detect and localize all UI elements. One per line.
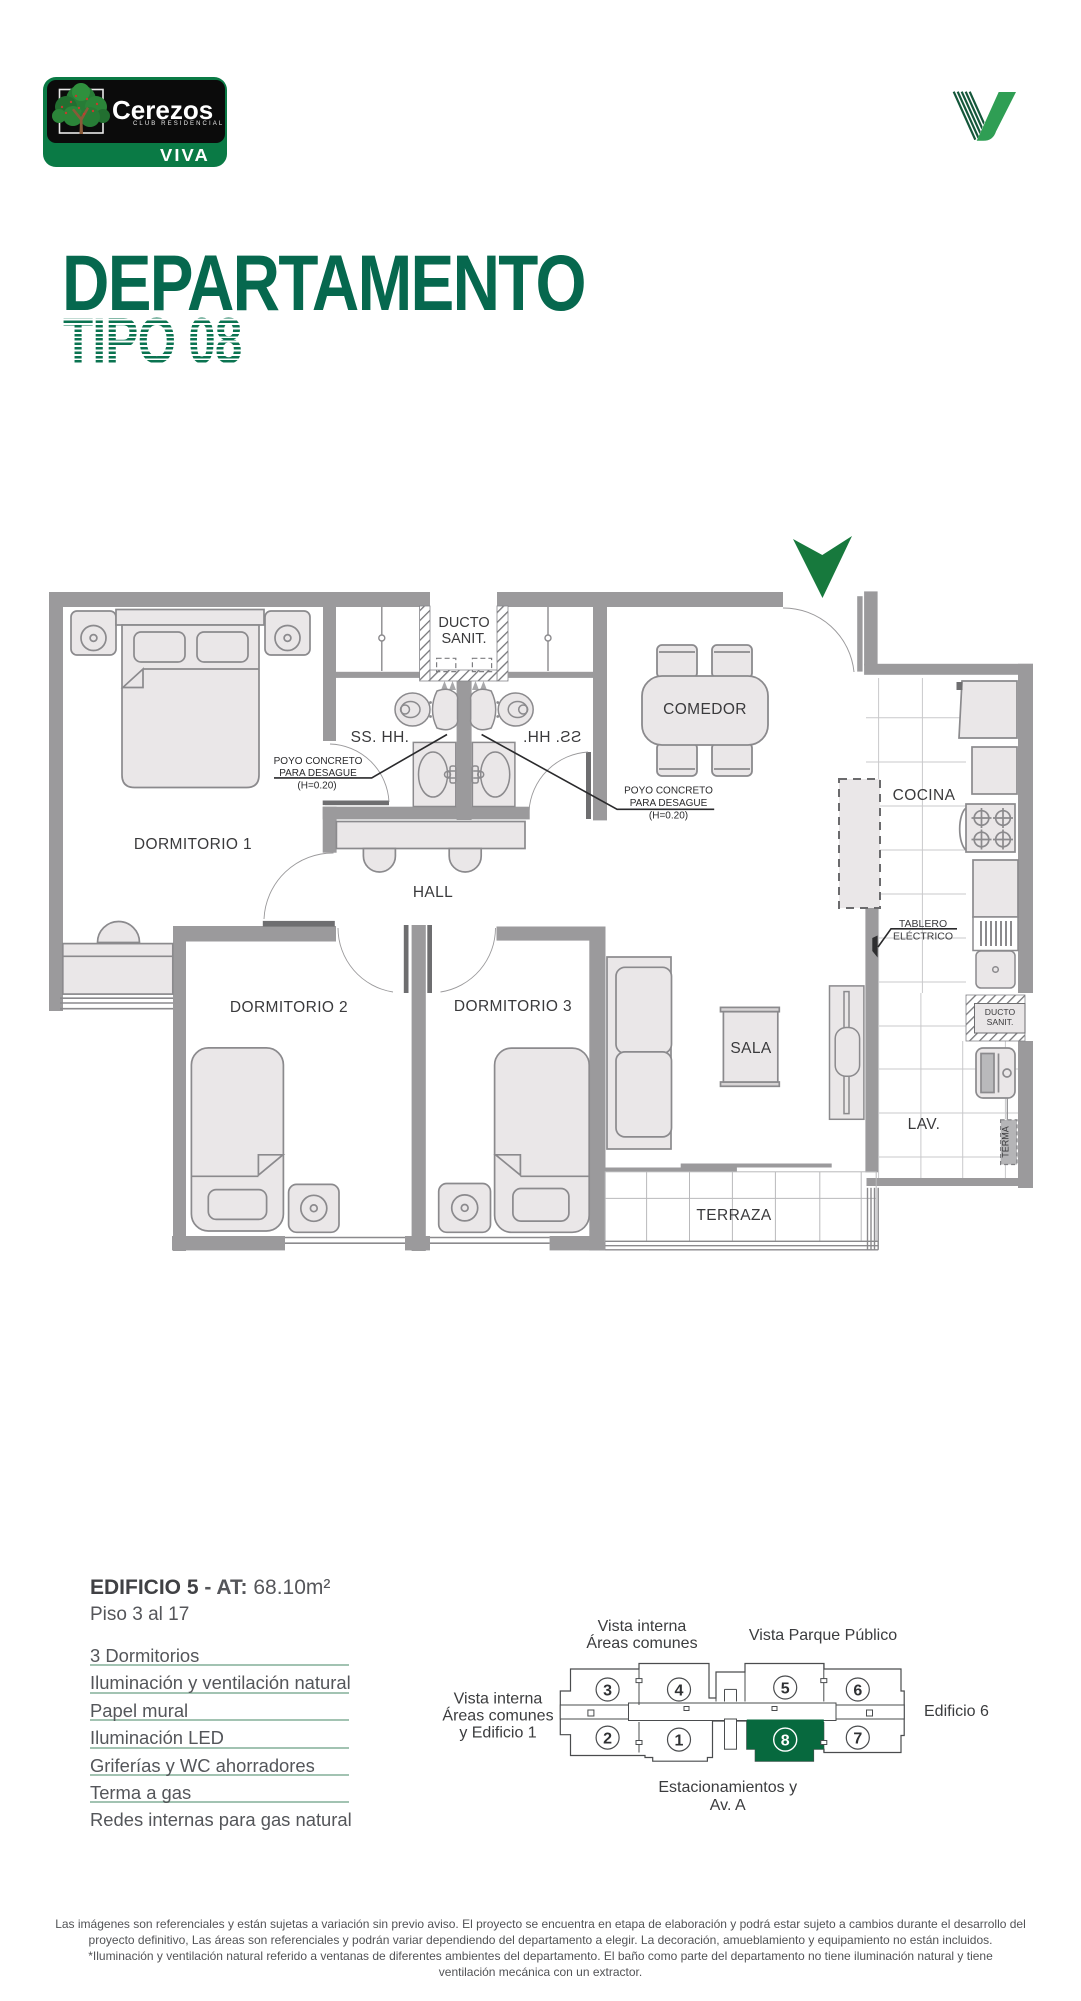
svg-text:TERRAZA: TERRAZA xyxy=(696,1207,771,1224)
svg-text:6: 6 xyxy=(853,1682,862,1699)
svg-text:COMEDOR: COMEDOR xyxy=(663,701,747,718)
svg-text:COCINA: COCINA xyxy=(893,787,956,804)
svg-text:SS. HH.: SS. HH. xyxy=(351,729,410,746)
svg-text:(H=0.20): (H=0.20) xyxy=(649,811,688,822)
svg-text:DUCTO: DUCTO xyxy=(985,1007,1016,1017)
svg-text:Áreas comunes: Áreas comunes xyxy=(586,1633,697,1652)
svg-text:DORMITORIO 2: DORMITORIO 2 xyxy=(230,999,348,1016)
svg-text:LAV.: LAV. xyxy=(908,1116,941,1133)
svg-text:TERMA: TERMA xyxy=(1001,1126,1011,1158)
svg-text:4: 4 xyxy=(675,1682,684,1699)
svg-text:Edificio 6: Edificio 6 xyxy=(924,1703,989,1720)
svg-text:Vista interna: Vista interna xyxy=(598,1618,687,1635)
svg-text:SANIT.: SANIT. xyxy=(987,1017,1014,1027)
svg-text:y Edificio 1: y Edificio 1 xyxy=(459,1724,536,1741)
svg-text:SS. HH.: SS. HH. xyxy=(523,729,582,746)
svg-text:PARA DESAGUE: PARA DESAGUE xyxy=(630,798,708,809)
svg-text:POYO CONCRETO: POYO CONCRETO xyxy=(624,786,713,797)
svg-text:(H=0.20): (H=0.20) xyxy=(297,781,336,792)
svg-text:HALL: HALL xyxy=(413,884,453,901)
svg-text:Vista Parque Público: Vista Parque Público xyxy=(749,1627,897,1644)
svg-text:DORMITORIO 3: DORMITORIO 3 xyxy=(454,998,572,1015)
svg-text:Av. A: Av. A xyxy=(710,1797,746,1814)
svg-text:Vista interna: Vista interna xyxy=(454,1691,543,1708)
svg-text:Áreas comunes: Áreas comunes xyxy=(442,1705,553,1724)
svg-text:7: 7 xyxy=(853,1730,862,1747)
svg-text:SALA: SALA xyxy=(730,1040,771,1057)
svg-text:SANIT.: SANIT. xyxy=(441,631,486,647)
svg-text:DUCTO: DUCTO xyxy=(438,615,489,631)
svg-text:ELÉCTRICO: ELÉCTRICO xyxy=(893,930,953,943)
svg-text:5: 5 xyxy=(781,1680,790,1697)
svg-text:POYO CONCRETO: POYO CONCRETO xyxy=(274,756,363,767)
svg-text:DORMITORIO 1: DORMITORIO 1 xyxy=(134,836,252,853)
svg-text:8: 8 xyxy=(781,1732,790,1749)
svg-text:1: 1 xyxy=(675,1732,684,1749)
svg-text:Estacionamientos y: Estacionamientos y xyxy=(658,1779,797,1796)
svg-text:3: 3 xyxy=(603,1682,612,1699)
svg-text:2: 2 xyxy=(603,1730,612,1747)
